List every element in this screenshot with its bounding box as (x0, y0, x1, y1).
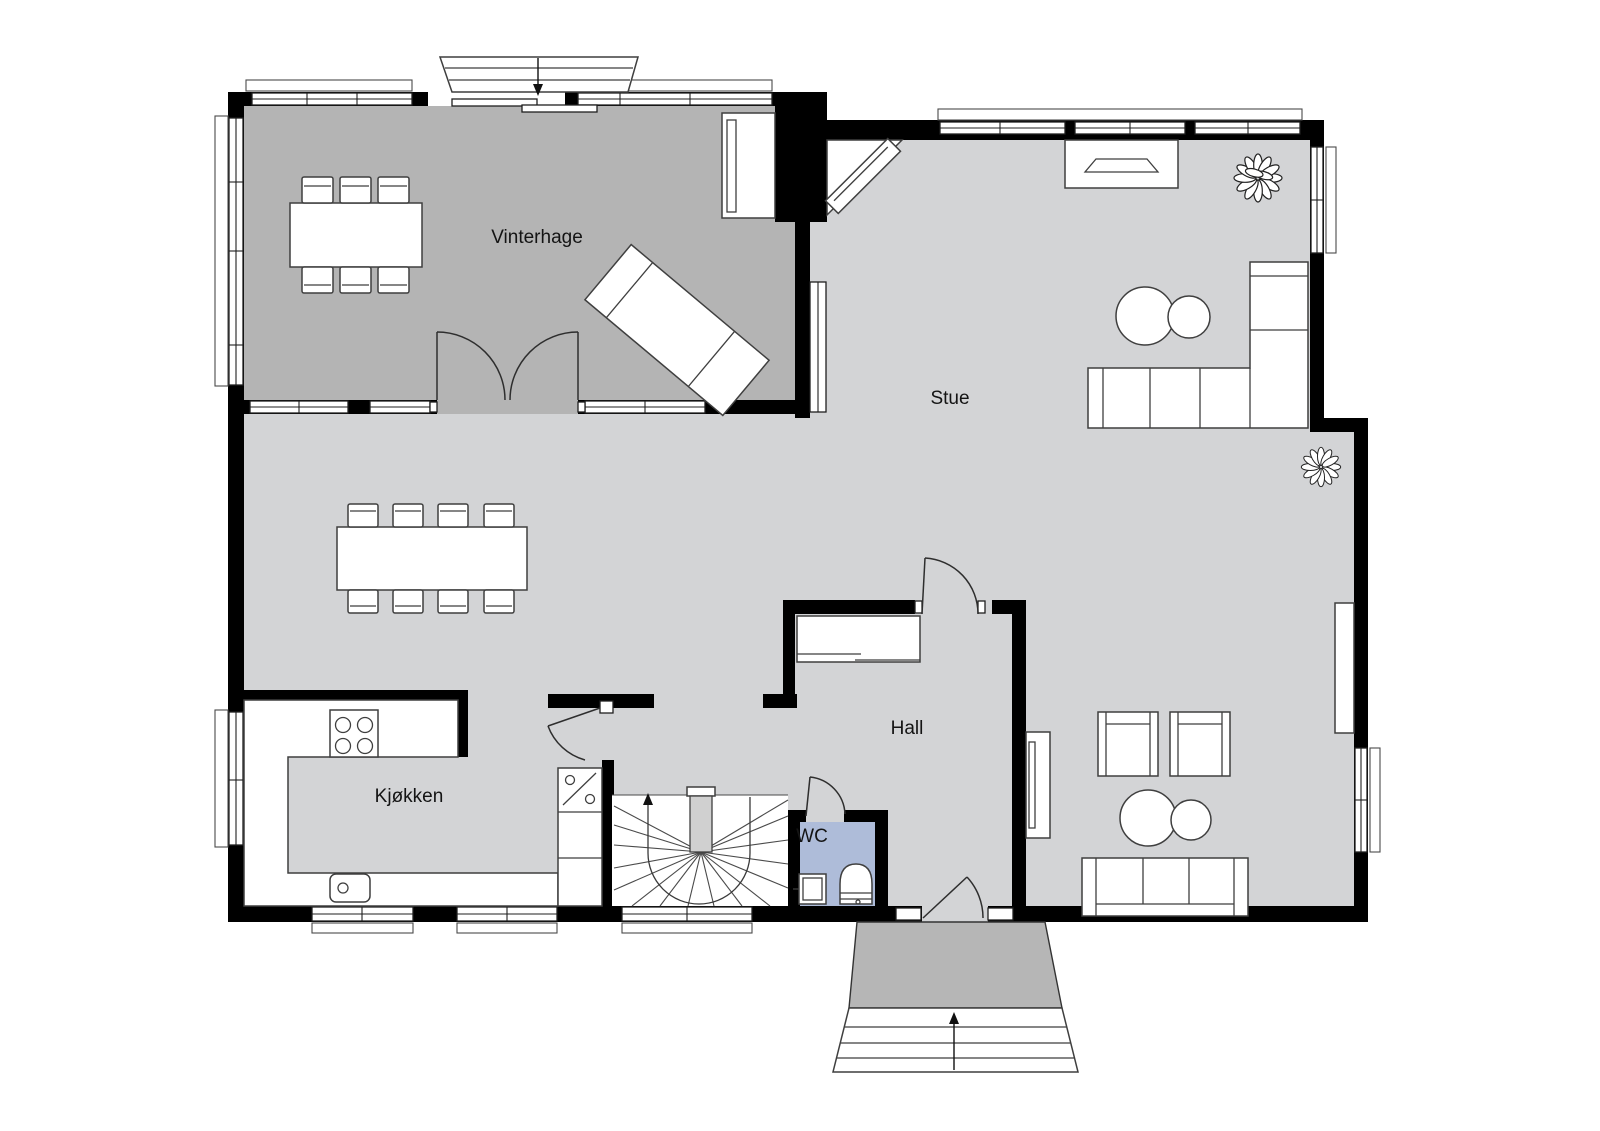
console-on-hall-wall (1026, 732, 1050, 838)
window-stue-right-upper (1311, 147, 1323, 253)
window-stue-top (940, 122, 1300, 134)
label-stue: Stue (930, 388, 969, 409)
vinterhage-sideboard (722, 113, 775, 218)
glass-panel-stue-left (810, 282, 826, 412)
stove (330, 710, 378, 757)
tv-bench (1065, 140, 1178, 188)
coffee-table-round-large (1116, 287, 1174, 345)
label-wc: WC (796, 826, 828, 847)
entrance-platform (849, 922, 1062, 1008)
entrance-jamb-right (988, 908, 1013, 920)
label-hall: Hall (891, 718, 924, 739)
sofa-three-seat (1082, 858, 1248, 916)
dining-table-large (337, 527, 527, 590)
floor-plan-svg: Vinterhage Stue Hall Kjøkken WC (0, 0, 1600, 1131)
dishwasher-column (558, 768, 602, 906)
hall-door-jamb-left (915, 601, 922, 613)
console-right-wall (1335, 603, 1354, 733)
stair-newel-cap (687, 787, 715, 796)
stair-newel (690, 796, 712, 852)
window-bottom-wall (312, 907, 752, 921)
coffee-table-round-small-2 (1171, 800, 1211, 840)
sink (330, 874, 370, 902)
main-entrance-steps (833, 922, 1078, 1072)
coffee-table-round-small (1168, 296, 1210, 338)
kitchen-door-jamb (600, 701, 613, 713)
wc-toilet (840, 864, 872, 904)
chairs-top-row (302, 177, 409, 203)
hall-door-jamb-right (978, 601, 985, 613)
armchair-2 (1170, 712, 1230, 776)
floor-plan-page: Vinterhage Stue Hall Kjøkken WC (0, 0, 1600, 1131)
armchair-1 (1098, 712, 1158, 776)
staircase (612, 787, 788, 906)
chairs-bottom-row (302, 267, 409, 293)
top-entrance-steps (440, 57, 638, 96)
vinterhage-dining-set (290, 177, 422, 293)
hall-closet (797, 616, 920, 662)
entrance-jamb-left (896, 908, 921, 920)
label-kjokken: Kjøkken (375, 786, 444, 807)
window-stue-right-lower (1355, 748, 1367, 852)
coffee-table-round-large-2 (1120, 790, 1176, 846)
window-left-kitchen (229, 712, 243, 845)
window-left-vinterhage (229, 118, 243, 385)
label-vinterhage: Vinterhage (491, 227, 583, 248)
dining-table-small (290, 203, 422, 267)
